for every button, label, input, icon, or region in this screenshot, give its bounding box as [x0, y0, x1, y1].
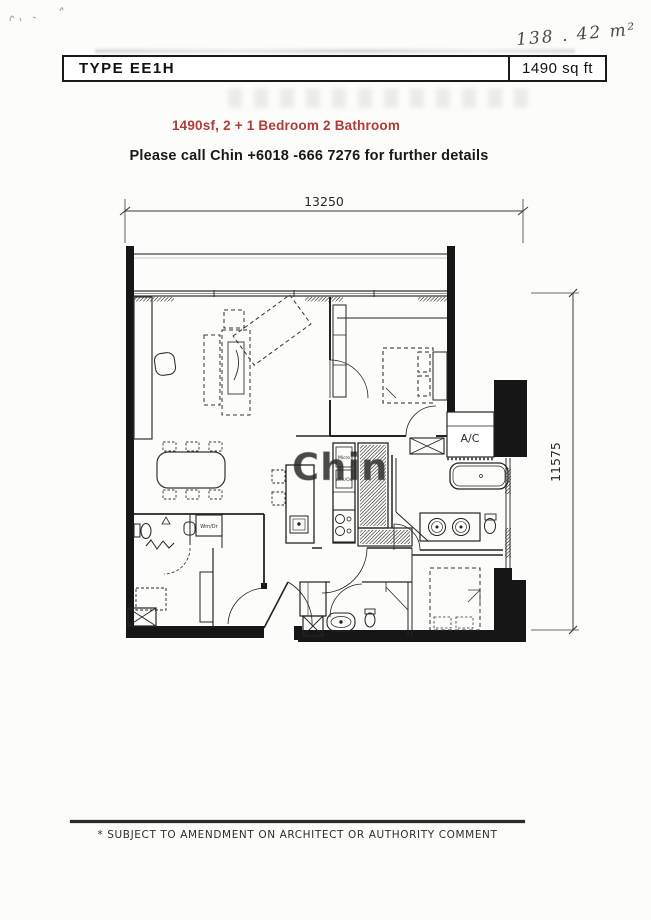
entrance-door	[264, 582, 312, 628]
kitchen-cabinet-label-2: Wm/Ov	[336, 477, 353, 483]
master-bath	[394, 458, 508, 550]
washer-dryer-label: Wm/Dr	[200, 524, 218, 530]
pen-scribbles	[10, 8, 63, 21]
dim-width-label: 13250	[304, 194, 344, 209]
dim-height-label: 11575	[548, 442, 563, 482]
kitchen-cabinet-label-1: Micro	[338, 455, 350, 461]
bathroom2	[312, 548, 412, 637]
bedroom2	[330, 297, 447, 454]
living-furniture	[134, 295, 311, 439]
foyer-shaft	[300, 582, 326, 636]
footer-divider	[70, 820, 525, 823]
dining-set	[157, 442, 225, 499]
balcony-edge	[134, 254, 447, 258]
wardrobes	[358, 443, 412, 546]
utility-rooms	[128, 514, 264, 628]
floor-plan-drawing: 13250 11575 Chin	[0, 0, 651, 920]
scanned-floorplan-page: { "note": { "handwritten_area": "138 . 4…	[0, 0, 651, 920]
disclaimer-text: * SUBJECT TO AMENDMENT ON ARCHITECT OR A…	[70, 829, 525, 841]
ac-label: A/C	[461, 432, 480, 445]
master-bedroom	[412, 555, 503, 630]
